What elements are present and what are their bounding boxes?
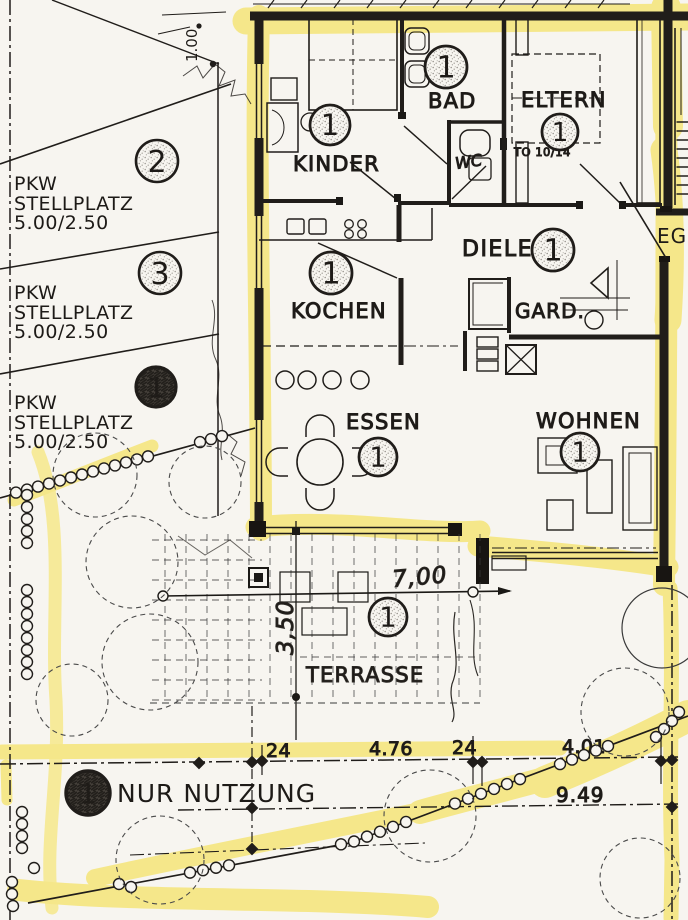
hedge-circle: [22, 585, 33, 596]
hedge-circle: [17, 843, 28, 854]
stall-1-marker-number: 1: [147, 371, 165, 404]
hedge-circle: [7, 889, 18, 900]
shelf-box-3: [477, 361, 498, 371]
stove-burner: [358, 230, 367, 239]
dim-24-a: 24: [266, 740, 291, 762]
highlight-bottom-diagonal-1: [95, 810, 425, 878]
stall-1-label-1: PKW: [14, 392, 57, 414]
stall-3-label-1: PKW: [14, 282, 57, 304]
shrub-freehand-1: [451, 612, 456, 722]
hedge-circle: [121, 457, 132, 468]
jamb: [619, 201, 626, 209]
hedge-circle: [22, 526, 33, 537]
kinder-shelf: [271, 78, 297, 100]
hedge-circle: [22, 657, 33, 668]
stall-2-marker-number: 2: [147, 145, 166, 180]
hedge-circle: [22, 597, 33, 608]
terrace-rect-3: [302, 608, 347, 635]
terrace: 7,00 3,50 TERRASSE: [150, 521, 512, 740]
jamb: [398, 112, 406, 119]
survey-tick-1: [162, 12, 226, 15]
hedge-circle: [99, 463, 110, 474]
dim-diamond: [476, 756, 487, 767]
hedge-circle: [8, 901, 19, 912]
unit-marker-kochen: 1: [310, 252, 352, 294]
kitchen-sink-1: [287, 219, 304, 234]
hedge-circle: [17, 807, 28, 818]
hedge-circle: [22, 609, 33, 620]
parking-area: 2 PKW STELLPLATZ 5.00/2.50 3 PKW STELLPL…: [14, 29, 201, 453]
usage-marker-number: 1: [79, 777, 97, 810]
hedge-circle: [476, 788, 487, 799]
hedge-circle: [22, 669, 33, 680]
pillar-wohnen-right: [656, 566, 672, 582]
hedge-circle: [66, 472, 77, 483]
survey-point-1: [196, 23, 201, 28]
unit-marker-number: 1: [543, 234, 562, 269]
hedge-circle: [515, 774, 526, 785]
hedge-circle: [77, 469, 88, 480]
tree-canopy: [36, 664, 108, 736]
floor-label-eg: EG.: [657, 224, 688, 248]
axis-point-top: [292, 527, 300, 535]
hedge-circle: [7, 877, 18, 888]
kitchen-sink-2: [309, 219, 326, 234]
hedge-circle: [143, 451, 154, 462]
room-wc: WC: [449, 120, 507, 205]
chair-north: [306, 415, 334, 437]
room-eltern: ELTERN TO 10/14: [504, 19, 662, 209]
dim-diamond: [193, 757, 204, 768]
hedge-circle: [674, 707, 685, 718]
room-label-terrasse: TERRASSE: [305, 663, 424, 687]
scanned-floor-plan: 2 PKW STELLPLATZ 5.00/2.50 3 PKW STELLPL…: [0, 0, 688, 920]
hedge-circle: [110, 460, 121, 471]
room-label-essen: ESSEN: [346, 410, 421, 434]
hedge-circle: [579, 750, 590, 761]
unit-marker-wohnen: 1: [561, 433, 599, 471]
floor-plan-svg: 2 PKW STELLPLATZ 5.00/2.50 3 PKW STELLPL…: [0, 0, 688, 920]
shrub-freehand-2: [470, 600, 478, 676]
room-label-diele: DIELE: [462, 237, 533, 262]
unit-marker-eltern: 1: [542, 114, 578, 150]
hedge-circle: [211, 862, 222, 873]
dim-arrowhead: [498, 587, 512, 595]
unit-marker-number: 1: [321, 108, 339, 142]
tree-canopy: [102, 614, 198, 710]
hedge-circle: [22, 538, 33, 549]
hedge-circle: [567, 754, 578, 765]
hedge-circle: [603, 741, 614, 752]
hedge-circle: [29, 863, 40, 874]
room-label-bad: BAD: [428, 89, 477, 113]
hedge-circle: [185, 867, 196, 878]
top-dimension-label: 1.00: [183, 29, 201, 62]
room-label-wc: WC: [454, 150, 484, 173]
gard-closet-inner: [473, 283, 503, 325]
jamb: [394, 194, 401, 202]
room-label-wohnen: WOHNEN: [536, 409, 641, 433]
stove-burner: [345, 220, 354, 229]
unit-marker-number: 1: [436, 51, 455, 86]
hedge-circle: [22, 490, 33, 501]
hedge-circle: [450, 798, 461, 809]
tree-canopy: [169, 446, 241, 518]
unit-marker-diele: 1: [532, 229, 574, 271]
sofa-2-inner: [629, 453, 651, 523]
hedge-circle: [555, 759, 566, 770]
pillar-essen-left: [249, 521, 266, 537]
unit-marker-number: 1: [571, 437, 589, 469]
hedge-circle: [126, 882, 137, 893]
unit-marker-number: 1: [369, 442, 387, 474]
hedge-circle: [388, 821, 399, 832]
tree-canopy: [86, 516, 178, 608]
room-wohnen: WOHNEN: [536, 409, 657, 530]
room-label-gard: GARD.: [515, 299, 585, 323]
stall-2-label-1: PKW: [14, 173, 57, 195]
armchair: [547, 500, 573, 530]
gard-closet: [469, 279, 507, 329]
kinder-desk: [267, 103, 298, 152]
hedge-circle: [349, 836, 360, 847]
pass-circle: [351, 371, 369, 389]
stall-boundary-2: [0, 232, 219, 269]
terrace-width-dim: 7,00: [391, 562, 448, 593]
unit-marker-number: 1: [552, 118, 569, 148]
room-kochen: KOCHEN: [259, 205, 458, 389]
hedge-circle: [22, 645, 33, 656]
hedge-circle: [489, 783, 500, 794]
chair-south: [306, 488, 334, 510]
axis-point-bottom: [292, 693, 300, 701]
terrace-scribble: [178, 536, 252, 558]
sofa-2: [623, 447, 657, 530]
shaft-x: [506, 345, 536, 374]
hedge-circle: [22, 502, 33, 513]
revision-scribble-3: [225, 432, 245, 476]
highlight-left-wall: [258, 16, 261, 530]
stall-boundary-1: [0, 84, 231, 164]
dim-476: 4.76: [369, 738, 413, 760]
stall-3-label-3: 5.00/2.50: [14, 321, 109, 343]
usage-note: NUR NUTZUNG: [117, 779, 316, 808]
hedge-circle: [502, 779, 513, 790]
hedge-circle: [206, 434, 217, 445]
pillar-essen-right: [448, 523, 462, 536]
terrace-rect-1: [280, 572, 310, 602]
revision-scribble-1: [183, 64, 251, 104]
bad-sink-1-basin: [409, 32, 425, 50]
hedge-circle: [22, 621, 33, 632]
hedge-circle: [17, 831, 28, 842]
stove-burner: [345, 230, 354, 239]
jamb: [336, 197, 343, 205]
hedge-circle: [88, 466, 99, 477]
unit-marker-terrasse: 1: [369, 598, 407, 636]
unit-marker-number: 1: [321, 257, 340, 292]
bad-door-leaf: [404, 126, 447, 164]
hedge-circle: [17, 819, 28, 830]
hedge-circle: [401, 816, 412, 827]
diele-symbol-triangle: [591, 268, 608, 298]
unit-marker-bad: 1: [425, 46, 467, 88]
pass-circle: [276, 371, 294, 389]
unit-marker-kinder: 1: [310, 105, 350, 145]
terrace-post-core: [254, 573, 263, 582]
hedge-circle: [217, 431, 228, 442]
hedge-circle: [22, 633, 33, 644]
hedge-circle: [375, 826, 386, 837]
terrace-rect-2: [338, 572, 368, 602]
hedge-circle: [11, 487, 22, 498]
hedge-circle: [55, 475, 66, 486]
dim-diamond: [246, 756, 257, 767]
hedge-circle: [362, 831, 373, 842]
unit-marker-number: 1: [379, 602, 397, 634]
parking-stall-3: 3 PKW STELLPLATZ 5.00/2.50: [14, 252, 181, 343]
hedge-circle: [463, 793, 474, 804]
unit-marker-essen: 1: [359, 438, 397, 476]
shelf-box-2: [477, 349, 498, 359]
hedge-circle: [591, 745, 602, 756]
dim-24-b: 24: [452, 737, 477, 759]
room-kinder: KINDER: [259, 19, 447, 205]
pillar-wohnen-left: [476, 538, 489, 584]
hedge-circle: [22, 514, 33, 525]
kinder-desk-chairline: [272, 110, 284, 145]
hedge-circle: [336, 839, 347, 850]
dining-table: [297, 439, 343, 485]
pass-circle: [298, 371, 316, 389]
eltern-door-leaf: [580, 164, 621, 204]
shelf-box-1: [477, 337, 498, 347]
bad-sink-2-basin: [409, 65, 425, 83]
highlight-left-garden-curve: [38, 452, 57, 908]
stall-3-marker-number: 3: [150, 257, 169, 292]
room-label-eltern: ELTERN: [521, 88, 607, 112]
hedge-circle: [33, 481, 44, 492]
stove-burner: [358, 220, 367, 229]
room-label-kinder: KINDER: [293, 152, 380, 176]
highlight-left-edge-mark: [6, 765, 7, 800]
stall-2-label-3: 5.00/2.50: [14, 212, 109, 234]
diele-symbol-circle: [585, 311, 603, 329]
jamb: [576, 201, 583, 209]
room-label-kochen: KOCHEN: [291, 299, 387, 323]
dim-end-circle-right: [468, 587, 478, 597]
stall-1-label-3: 5.00/2.50: [14, 431, 109, 453]
parking-stall-2: 2 PKW STELLPLATZ 5.00/2.50: [14, 140, 178, 234]
hedge-circle: [132, 454, 143, 465]
pass-circle: [323, 371, 341, 389]
terrace-dim-line: [163, 591, 510, 596]
hedge-circle: [224, 860, 235, 871]
dim-total: 9.49: [556, 783, 605, 807]
terrace-depth-dim: 3,50: [273, 600, 299, 655]
